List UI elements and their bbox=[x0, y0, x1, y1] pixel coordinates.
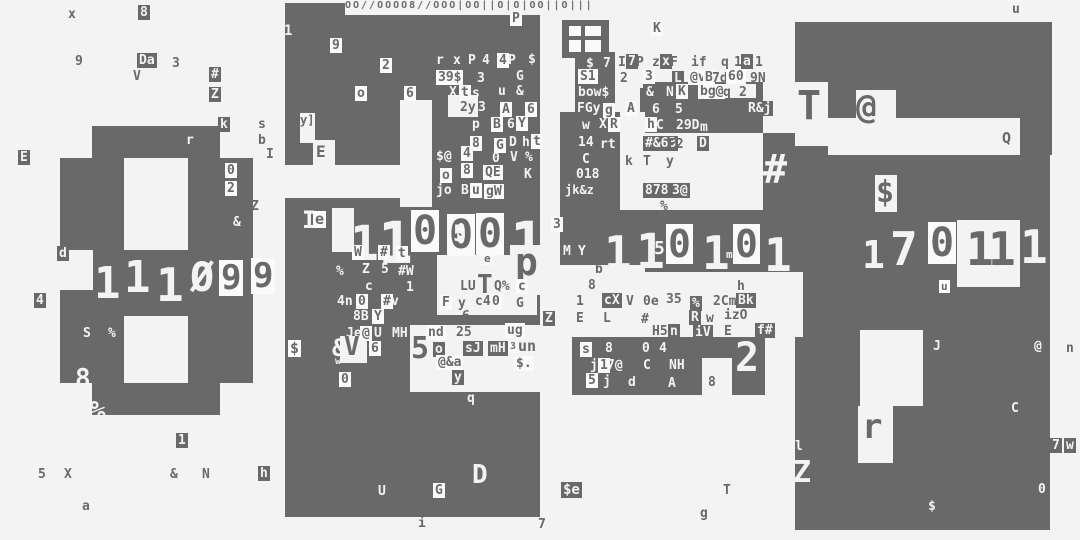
glyph: q bbox=[489, 375, 497, 388]
glyph: p bbox=[515, 243, 538, 281]
glyph: P bbox=[510, 11, 522, 26]
glyph: 018 bbox=[576, 168, 599, 181]
glyph: 0 bbox=[356, 294, 368, 309]
glyph: o bbox=[440, 168, 452, 183]
glyph: S1 bbox=[578, 69, 598, 84]
glyph: 9 bbox=[251, 258, 275, 294]
glyph: 0 bbox=[339, 372, 351, 387]
glyph: 5 bbox=[586, 373, 598, 388]
glyph: 6 bbox=[525, 102, 537, 117]
glyph: S bbox=[83, 327, 91, 340]
glyph: & bbox=[516, 85, 524, 98]
glyph: Z bbox=[362, 263, 370, 276]
glyph: 2 bbox=[620, 72, 628, 85]
glyph: C bbox=[656, 119, 664, 132]
glyph: Z bbox=[209, 87, 221, 102]
glyph: Bk bbox=[736, 293, 756, 308]
glyph: A bbox=[668, 377, 676, 390]
glyph: s bbox=[580, 342, 592, 357]
glyph: 1 bbox=[156, 262, 184, 308]
glyph: R bbox=[608, 117, 620, 132]
glyph: b bbox=[258, 134, 266, 147]
glyph: R&j bbox=[746, 101, 773, 116]
glyph: c bbox=[516, 279, 528, 294]
glyph: 9N bbox=[750, 72, 766, 85]
glyph: I bbox=[266, 148, 274, 161]
glyph: p bbox=[472, 118, 480, 131]
dark-block bbox=[795, 146, 828, 155]
glyph: r bbox=[436, 54, 444, 67]
glyph: V bbox=[344, 334, 360, 360]
glyph: 9 bbox=[330, 38, 342, 53]
glyph: y bbox=[452, 370, 464, 385]
glyph: V bbox=[510, 151, 518, 164]
glyph: w bbox=[706, 312, 714, 325]
glyph: n bbox=[668, 324, 680, 339]
glyph: D bbox=[509, 136, 517, 149]
glyph: I bbox=[618, 56, 626, 69]
glyph: 878 bbox=[643, 183, 670, 198]
glyph: N bbox=[202, 468, 210, 481]
glyph: Da bbox=[137, 53, 157, 68]
glyph: G bbox=[433, 483, 445, 498]
glyph: 0e bbox=[643, 295, 659, 308]
glyph: X bbox=[449, 86, 457, 99]
glyph: 7 bbox=[890, 226, 918, 272]
glyph: P bbox=[468, 54, 476, 67]
glyph: gW bbox=[484, 184, 504, 199]
glyph: 0 bbox=[490, 294, 502, 309]
glyph: 1 bbox=[988, 226, 1016, 272]
glyph: 0 bbox=[928, 222, 956, 264]
glyph: 9 bbox=[75, 55, 83, 68]
glyph: 7 bbox=[1050, 438, 1062, 453]
glyph: @ bbox=[856, 90, 876, 124]
glyph: y] bbox=[300, 114, 314, 126]
glyph: g bbox=[700, 507, 708, 520]
glyph: E bbox=[576, 312, 584, 325]
glyph: jo bbox=[436, 184, 452, 197]
glyph: 4 bbox=[482, 54, 490, 67]
glyph: 39$ bbox=[436, 70, 463, 85]
glyph: V bbox=[626, 295, 634, 308]
glyph: 1 bbox=[284, 24, 292, 38]
glyph: w bbox=[582, 119, 590, 132]
glyph: l bbox=[795, 440, 803, 453]
glyph: S bbox=[467, 373, 475, 386]
title-glyph-line: OO//OOOO8//OOO|OO||O|O|OO||O||| bbox=[345, 1, 594, 11]
glyph: E bbox=[724, 325, 732, 338]
glyph: m( bbox=[726, 249, 739, 260]
glyph: C bbox=[643, 359, 651, 372]
glyph: 6 bbox=[462, 310, 470, 323]
glyph: if bbox=[691, 56, 707, 69]
glyph: & bbox=[233, 216, 241, 229]
glyph: 1 bbox=[764, 232, 792, 278]
dark-block bbox=[92, 126, 220, 158]
glyph: 2Cm bbox=[713, 295, 736, 308]
glyph: 60 bbox=[726, 69, 746, 84]
glyph: 25 bbox=[456, 326, 472, 339]
glyph: A bbox=[625, 101, 637, 116]
glyph: Y bbox=[516, 116, 528, 131]
glyph: # bbox=[209, 67, 221, 82]
glyph: QE bbox=[483, 165, 503, 180]
dark-block bbox=[1020, 118, 1052, 155]
glyph: 8 bbox=[75, 366, 91, 392]
glyph: 4 bbox=[659, 342, 667, 355]
glyph: 1 bbox=[862, 236, 885, 274]
glyph: 0 bbox=[476, 213, 504, 255]
glyph: g bbox=[603, 103, 615, 118]
glyph: % bbox=[690, 296, 702, 311]
glyph: un bbox=[518, 339, 536, 354]
glyph: T bbox=[797, 86, 821, 126]
glyph: i bbox=[418, 517, 426, 530]
glyph: 1 bbox=[1020, 224, 1048, 270]
glyph: % bbox=[660, 200, 668, 213]
glyph: 7 bbox=[603, 57, 611, 70]
glyph: 4 bbox=[461, 146, 473, 161]
glyph: 5 bbox=[654, 240, 665, 258]
glyph: 1 bbox=[755, 56, 763, 69]
glyph: 9 bbox=[219, 260, 243, 296]
glyph: 2y bbox=[460, 101, 476, 114]
glyph: r bbox=[186, 134, 194, 147]
glyph: Z bbox=[251, 200, 259, 213]
glyph: 6 bbox=[404, 86, 416, 101]
glyph: 1 bbox=[124, 256, 151, 300]
glyph: Q% bbox=[494, 280, 510, 293]
glyph: 8 bbox=[461, 163, 473, 178]
window-logo-pane bbox=[585, 26, 601, 36]
dark-block bbox=[795, 22, 1052, 82]
glyph: s bbox=[258, 118, 266, 131]
glyph: E bbox=[316, 144, 326, 160]
glyph: J bbox=[933, 340, 941, 353]
glyph: K bbox=[651, 21, 663, 36]
glyph: m bbox=[700, 121, 708, 134]
glyph: Ø bbox=[190, 258, 214, 298]
glyph: 14 bbox=[578, 136, 594, 149]
glyph: 2 bbox=[735, 338, 759, 378]
window-logo-pane bbox=[569, 26, 581, 36]
glyph: # bbox=[641, 313, 649, 326]
glyph: K bbox=[676, 84, 688, 99]
glyph: e bbox=[313, 211, 326, 228]
glyph: @ bbox=[1032, 339, 1044, 354]
glyph: z bbox=[652, 56, 660, 69]
glyph: $ bbox=[528, 53, 536, 66]
light-patch bbox=[285, 165, 413, 198]
glyph: 7@ bbox=[607, 359, 623, 372]
glyph: F bbox=[670, 56, 678, 69]
glyph: @&a bbox=[436, 355, 463, 370]
glyph: S bbox=[153, 204, 166, 226]
glyph: s bbox=[472, 87, 480, 100]
glyph: % bbox=[108, 327, 116, 340]
glyph: 0 bbox=[1038, 483, 1046, 496]
glyph: F bbox=[440, 295, 452, 310]
glyph: & bbox=[646, 86, 654, 99]
glyph: K bbox=[524, 168, 532, 181]
glyph: 2 bbox=[739, 86, 747, 99]
glyph: j bbox=[590, 359, 598, 372]
glyph: $ bbox=[928, 500, 936, 513]
glyph: t bbox=[396, 246, 408, 261]
glyph: w bbox=[1064, 438, 1076, 453]
glyph: 8B bbox=[353, 310, 369, 323]
glyph: k bbox=[218, 117, 230, 132]
glyph: 1 bbox=[604, 230, 632, 276]
glyph: H bbox=[475, 357, 483, 370]
glyph: % bbox=[336, 265, 344, 278]
glitch-screen: x89Da3V#ZEkrsbI02Z&Sd4S%gj8%15X&Nha111Ø9… bbox=[0, 0, 1080, 540]
glyph: iV bbox=[693, 325, 713, 340]
glyph: sJ bbox=[463, 341, 483, 356]
glyph: mH bbox=[488, 341, 508, 356]
glyph: W bbox=[352, 245, 364, 260]
glyph: g bbox=[143, 317, 151, 330]
light-patch bbox=[124, 316, 188, 383]
glyph: 1 bbox=[94, 262, 121, 306]
window-logo-pane bbox=[569, 40, 581, 52]
glyph: 5 bbox=[453, 224, 466, 246]
glyph: $e bbox=[561, 482, 582, 498]
glyph: bg@ bbox=[698, 84, 725, 99]
glyph: U bbox=[378, 485, 386, 498]
glyph: 3 bbox=[643, 69, 655, 84]
glyph: 1 bbox=[406, 281, 414, 294]
glyph: ug bbox=[505, 323, 525, 338]
glyph: B bbox=[461, 184, 469, 197]
glyph: q bbox=[467, 392, 475, 405]
dark-block bbox=[285, 3, 345, 15]
glyph: jk&z bbox=[563, 183, 596, 197]
glyph: h bbox=[258, 466, 270, 481]
glyph: 3 bbox=[551, 217, 563, 232]
glyph: e bbox=[482, 252, 493, 265]
glyph: t bbox=[459, 85, 471, 100]
glyph: G bbox=[516, 297, 524, 310]
glyph: P bbox=[636, 56, 644, 69]
glyph: $ bbox=[288, 340, 301, 357]
window-logo-pane bbox=[585, 40, 601, 52]
glyph: E bbox=[18, 150, 30, 165]
glyph: 3 bbox=[477, 72, 485, 85]
glyph: 2 bbox=[380, 58, 392, 73]
glyph: V bbox=[133, 70, 141, 83]
glyph: #W bbox=[398, 265, 414, 278]
glyph: 0 bbox=[411, 210, 439, 252]
glyph: M bbox=[563, 245, 571, 258]
glyph: 6 bbox=[507, 118, 515, 131]
glyph: R bbox=[689, 310, 701, 325]
glyph: a bbox=[82, 500, 90, 513]
glyph: 5 bbox=[38, 468, 46, 481]
glyph: D bbox=[697, 136, 709, 151]
glyph: 0 bbox=[225, 163, 237, 178]
glyph: Y bbox=[578, 245, 586, 258]
glyph: # bbox=[763, 150, 787, 190]
glyph: Q bbox=[1002, 131, 1011, 146]
glyph: j bbox=[144, 348, 154, 364]
glyph: B bbox=[491, 117, 503, 132]
glyph: h bbox=[737, 280, 745, 293]
glyph: bow$ bbox=[578, 86, 609, 99]
glyph: & bbox=[170, 468, 178, 481]
glyph: 8 bbox=[138, 5, 150, 20]
glyph: 1 bbox=[576, 295, 584, 308]
glyph: X bbox=[64, 468, 72, 481]
glyph: $@ bbox=[436, 150, 452, 163]
glyph: F2 bbox=[668, 138, 684, 151]
glyph: NH bbox=[669, 359, 685, 372]
glyph: k bbox=[625, 155, 633, 168]
glyph: izO bbox=[724, 309, 747, 322]
glyph: a bbox=[741, 54, 753, 69]
glyph: # bbox=[527, 373, 535, 386]
glyph: u bbox=[470, 183, 482, 198]
glyph: d bbox=[57, 246, 69, 261]
dark-block bbox=[92, 383, 220, 415]
glyph: o bbox=[355, 86, 367, 101]
glyph: 5 bbox=[381, 263, 389, 276]
glyph: 1 bbox=[176, 433, 188, 448]
glyph: 5 bbox=[675, 103, 683, 116]
glyph: 0 bbox=[492, 152, 500, 165]
glyph: T bbox=[723, 484, 731, 497]
glyph: D bbox=[472, 462, 488, 488]
glyph: x bbox=[68, 8, 76, 21]
glyph: b bbox=[595, 263, 603, 276]
glyph: $ bbox=[876, 178, 894, 208]
glyph: v bbox=[391, 295, 399, 308]
glyph: 6 bbox=[652, 103, 660, 116]
glyph: 0 bbox=[666, 224, 693, 264]
glyph: C bbox=[1011, 402, 1019, 415]
glyph: q bbox=[721, 56, 729, 69]
glyph: rt bbox=[600, 138, 616, 151]
glyph: 3 bbox=[172, 57, 180, 70]
glyph: 0 bbox=[642, 342, 650, 355]
glyph: 2 bbox=[225, 181, 237, 196]
glyph: 5 bbox=[411, 334, 429, 364]
glyph: FGy bbox=[577, 102, 600, 115]
glyph: q bbox=[723, 86, 731, 99]
glyph: cX bbox=[602, 293, 622, 308]
glyph: # bbox=[378, 245, 390, 260]
light-patch bbox=[860, 330, 923, 406]
glyph: 8 bbox=[588, 279, 596, 292]
glyph: % bbox=[90, 398, 106, 424]
glyph: Y bbox=[372, 309, 384, 324]
glyph: j bbox=[603, 375, 611, 388]
glyph: n bbox=[1066, 342, 1074, 355]
glyph: 3@ bbox=[670, 183, 690, 198]
glyph: % bbox=[525, 151, 533, 164]
glyph: u bbox=[498, 85, 506, 98]
dark-block bbox=[220, 250, 253, 253]
glyph: 4n bbox=[337, 295, 353, 308]
glyph: 8 bbox=[605, 342, 613, 355]
glyph: G bbox=[516, 70, 524, 83]
glyph: 7 bbox=[538, 518, 546, 531]
glyph: f bbox=[508, 373, 516, 386]
glyph: h bbox=[522, 136, 530, 149]
glyph: P bbox=[508, 54, 516, 67]
glyph: A bbox=[500, 102, 512, 117]
glyph: c bbox=[365, 280, 373, 293]
glyph: c4 bbox=[475, 295, 491, 308]
glyph: w bbox=[335, 357, 341, 367]
glyph: 1 bbox=[350, 220, 379, 268]
glyph: $. bbox=[514, 356, 534, 371]
glyph: u bbox=[939, 280, 950, 293]
glyph: x bbox=[453, 54, 461, 67]
glyph: u bbox=[1012, 3, 1020, 16]
glyph: @ bbox=[360, 326, 372, 341]
glyph: 29D bbox=[676, 119, 699, 132]
glyph: 8 bbox=[708, 376, 716, 389]
glyph: y bbox=[666, 155, 674, 168]
glyph: Z bbox=[543, 311, 555, 326]
glyph: T bbox=[643, 155, 651, 168]
glyph: 3 bbox=[478, 101, 486, 114]
glyph: U bbox=[374, 327, 382, 340]
glyph: LU bbox=[460, 280, 476, 293]
glyph: L bbox=[603, 312, 611, 325]
glyph: H5 bbox=[652, 325, 668, 338]
glyph: X bbox=[599, 118, 607, 131]
glyph: MH bbox=[392, 327, 408, 340]
glyph: t bbox=[531, 134, 543, 149]
glyph: 6 bbox=[369, 341, 381, 356]
glyph: 4 bbox=[34, 293, 46, 308]
glyph: r bbox=[862, 410, 882, 444]
glyph: Z bbox=[793, 458, 811, 488]
glyph: 3 bbox=[508, 341, 518, 353]
glyph: N bbox=[666, 86, 674, 99]
glyph: 35 bbox=[666, 293, 682, 306]
glyph: F bbox=[722, 359, 730, 372]
glyph: C bbox=[582, 153, 590, 166]
glyph: d bbox=[628, 376, 636, 389]
